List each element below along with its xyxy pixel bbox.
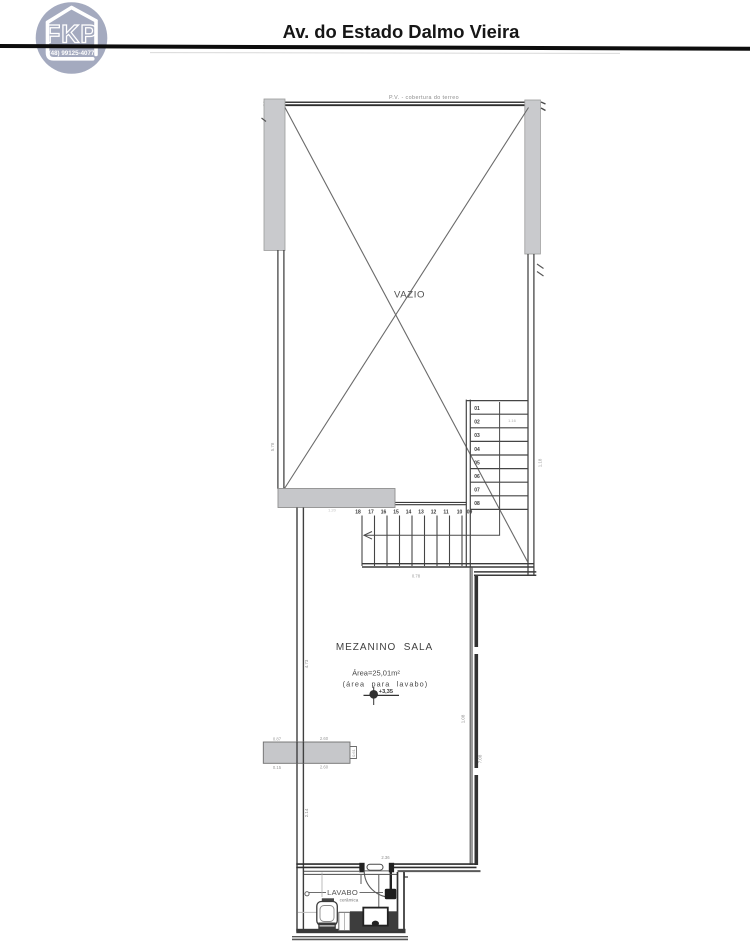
svg-text:1.16: 1.16 <box>508 418 517 423</box>
svg-text:14: 14 <box>406 510 412 516</box>
svg-text:LAVABO: LAVABO <box>327 888 358 897</box>
svg-text:10: 10 <box>457 510 463 516</box>
svg-text:(área para lavabo): (área para lavabo) <box>343 680 429 689</box>
svg-text:05: 05 <box>474 460 480 466</box>
svg-text:cerâmica: cerâmica <box>340 897 359 902</box>
svg-text:(48) 99125-4077: (48) 99125-4077 <box>49 50 95 57</box>
svg-text:VAZIO: VAZIO <box>394 289 425 300</box>
svg-text:15: 15 <box>393 510 399 516</box>
svg-text:03: 03 <box>474 433 480 439</box>
svg-text:13: 13 <box>418 510 424 516</box>
svg-text:0.78: 0.78 <box>412 574 421 579</box>
svg-text:11: 11 <box>443 510 449 516</box>
svg-text:08: 08 <box>474 501 480 507</box>
svg-text:0.61: 0.61 <box>351 748 356 757</box>
svg-text:12: 12 <box>431 510 437 516</box>
svg-text:09: 09 <box>467 510 473 516</box>
svg-text:5.78: 5.78 <box>270 442 275 451</box>
svg-text:1.20: 1.20 <box>328 508 337 513</box>
svg-text:7.08: 7.08 <box>478 754 483 763</box>
svg-text:06: 06 <box>474 474 480 480</box>
svg-text:02: 02 <box>474 420 480 426</box>
svg-text:MEZANINO SALA: MEZANINO SALA <box>336 642 433 653</box>
svg-text:04: 04 <box>474 447 480 453</box>
svg-text:1.08: 1.08 <box>461 714 466 723</box>
svg-text:Área=25,01m²: Área=25,01m² <box>352 668 400 677</box>
svg-text:2.60: 2.60 <box>320 765 329 770</box>
svg-text:P.V. - cobertura do terreo: P.V. - cobertura do terreo <box>389 95 459 101</box>
svg-text:0.15: 0.15 <box>273 765 282 770</box>
svg-text:2.60: 2.60 <box>320 736 329 741</box>
svg-text:0.87: 0.87 <box>273 737 282 742</box>
svg-text:Av. do Estado Dalmo Vieira: Av. do Estado Dalmo Vieira <box>283 21 521 42</box>
svg-text:2.36: 2.36 <box>381 855 390 860</box>
svg-text:18: 18 <box>355 510 361 516</box>
svg-text:2.14: 2.14 <box>304 808 309 817</box>
svg-text:01: 01 <box>474 406 480 412</box>
svg-text:07: 07 <box>474 488 480 494</box>
svg-text:17: 17 <box>368 510 374 516</box>
svg-text:16: 16 <box>381 510 387 516</box>
svg-text:1.18: 1.18 <box>538 458 543 467</box>
svg-text:4.73: 4.73 <box>304 659 309 668</box>
svg-text:+3,35: +3,35 <box>379 689 393 695</box>
